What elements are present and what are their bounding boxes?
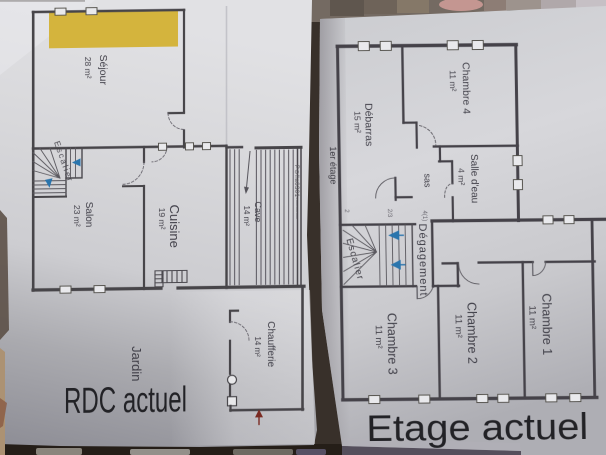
svg-text:28 m²: 28 m² <box>83 57 93 79</box>
svg-text:Chaufferie: Chaufferie <box>265 321 276 368</box>
svg-text:sas: sas <box>422 173 432 188</box>
svg-text:RDC actuel: RDC actuel <box>64 378 187 421</box>
svg-text:11 m²: 11 m² <box>373 325 384 349</box>
svg-text:Chambre 2: Chambre 2 <box>464 302 479 364</box>
svg-text:Débarras: Débarras <box>362 103 375 146</box>
svg-text:Cave: Cave <box>253 201 263 222</box>
svg-text:Séjour: Séjour <box>97 54 109 85</box>
svg-text:Chambre 1: Chambre 1 <box>539 293 554 355</box>
svg-text:Jardin: Jardin <box>129 346 144 382</box>
svg-text:Salon: Salon <box>83 202 94 228</box>
svg-text:15 m²: 15 m² <box>352 111 362 133</box>
svg-text:23 m²: 23 m² <box>72 205 82 227</box>
svg-text:4 m²: 4 m² <box>456 168 466 185</box>
svg-text:Dégagement: Dégagement <box>416 224 429 296</box>
svg-text:11 m²: 11 m² <box>452 314 463 338</box>
svg-text:4(1): 4(1) <box>421 211 427 222</box>
svg-text:Chambre 3: Chambre 3 <box>384 313 399 375</box>
svg-text:1er étage: 1er étage <box>328 146 339 184</box>
svg-text:14 m²: 14 m² <box>242 205 251 226</box>
svg-text:Etage actuel: Etage actuel <box>366 406 589 449</box>
svg-text:Salle d'eau: Salle d'eau <box>468 154 480 203</box>
svg-text:14 m²: 14 m² <box>253 336 262 357</box>
svg-text:11 m²: 11 m² <box>448 70 458 91</box>
svg-text:Chambre 4: Chambre 4 <box>460 62 473 114</box>
svg-text:19 m²: 19 m² <box>157 208 167 230</box>
svg-text:11 m²: 11 m² <box>526 305 537 329</box>
svg-text:Cuisine: Cuisine <box>167 204 182 248</box>
svg-text:2/3: 2/3 <box>386 209 392 218</box>
svg-text:P⊙‼a6301·———: P⊙‼a6301·——— <box>293 165 299 219</box>
